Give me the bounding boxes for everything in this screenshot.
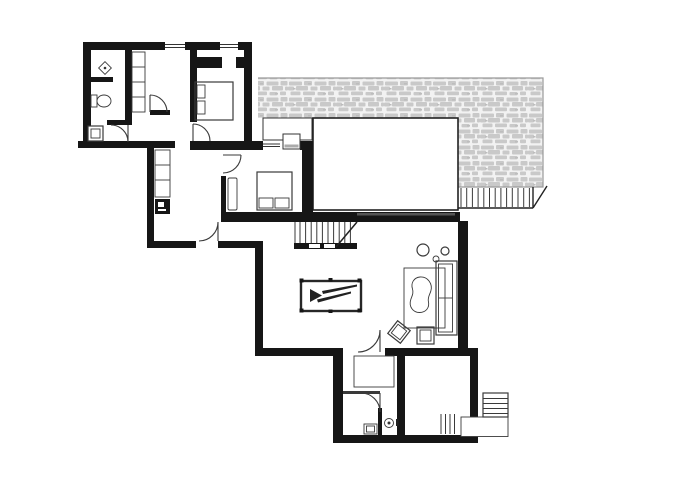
entry-landing [461, 417, 508, 437]
wall-left-2 [147, 148, 154, 248]
door-bedroom-middle [223, 155, 241, 173]
bathroom-fixtures [88, 62, 111, 141]
wall-wc-stub [378, 408, 382, 435]
wc-sink [364, 424, 377, 434]
wall-bedroom2-divider [221, 176, 226, 222]
wall-bottom-1 [78, 141, 175, 148]
window-4 [283, 134, 300, 149]
wall-bottom-2a [147, 241, 196, 248]
pool-table [300, 278, 362, 313]
closet-hallway [155, 150, 170, 197]
wall-right-5 [470, 356, 478, 418]
floor-plan-drawing [0, 0, 679, 489]
side-table [417, 327, 434, 344]
stair-base-gap [309, 244, 320, 248]
wall-bottom-2b [218, 241, 263, 248]
wall-bath-divider [125, 50, 132, 125]
wall-bottom-3a [255, 348, 343, 356]
wall-top-2a [190, 141, 263, 150]
wall-stub-bathdoor [107, 120, 131, 125]
wall-left-3 [255, 248, 263, 356]
door-living-entry [358, 330, 380, 352]
double-bed-middle [257, 172, 292, 210]
sheepskin [410, 277, 431, 313]
wc-mark [396, 419, 399, 426]
terrace-paving-right [455, 78, 543, 187]
exterior-entry-steps [461, 393, 508, 437]
door-bathroom [111, 125, 128, 142]
storage-cabinet [354, 356, 394, 387]
pillow [197, 101, 205, 114]
washing-machine [88, 126, 103, 141]
terrace-stair-stringer [458, 186, 547, 208]
entry-steps-inner [441, 414, 455, 434]
door-hallway [199, 222, 218, 241]
toilet-top [91, 95, 111, 107]
wall-top-a [83, 42, 165, 50]
pillow [275, 198, 289, 208]
floor-plan-canvas [0, 0, 679, 489]
door-bedroom-top [193, 124, 210, 141]
wall-right-3 [458, 221, 468, 356]
wall-bedroom1-divider [190, 50, 197, 122]
window-2 [220, 42, 238, 50]
door-closet-room [150, 95, 167, 112]
plant-circles [417, 244, 449, 262]
sofa [436, 261, 457, 335]
hall-appliance [155, 199, 170, 214]
wall-right-2 [302, 141, 313, 222]
wardrobe-band-a [197, 57, 222, 68]
pillow [197, 85, 205, 98]
shower-drain-icon [99, 62, 112, 75]
bedroom-middle-furniture [228, 172, 292, 210]
roof-void [313, 118, 458, 210]
wall-stub-bath [91, 77, 113, 82]
wardrobe-band-b [236, 57, 250, 68]
bottom-block [354, 356, 508, 437]
living-room-furniture [300, 244, 458, 344]
door-wc [361, 393, 380, 412]
wall-right-4a [397, 352, 405, 443]
wc-toilet [385, 419, 394, 428]
terrace-stairs [458, 186, 547, 208]
wall-left-4 [333, 352, 343, 443]
window-1 [165, 42, 185, 50]
closet-top-block [132, 52, 145, 112]
window-3 [263, 142, 280, 149]
bedroom-top-furniture [195, 82, 233, 120]
wall-bottom-4 [333, 435, 478, 443]
pillow [259, 198, 273, 208]
wall-top-b [185, 42, 220, 50]
side-chair [388, 321, 410, 343]
stair-handrail [357, 213, 455, 216]
stair-base-gap [324, 244, 335, 248]
dresser [228, 178, 237, 210]
terrace-stair-treads [461, 188, 529, 207]
